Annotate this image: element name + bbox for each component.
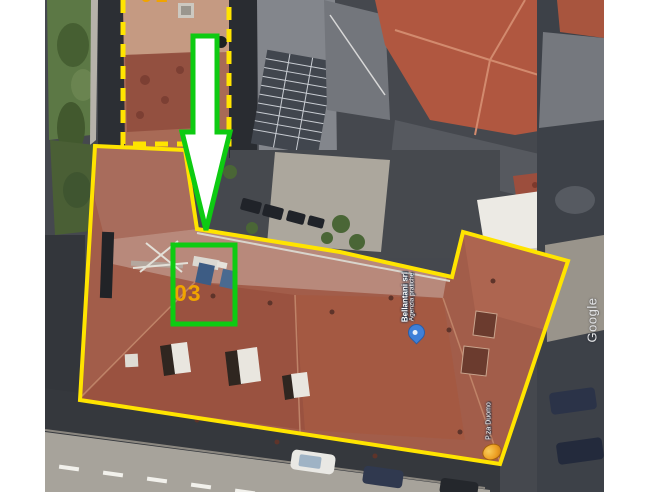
google-watermark: Google bbox=[585, 298, 600, 343]
business-map-label: Bellantani srl Agenzia pratiche bbox=[401, 272, 416, 322]
right-street bbox=[537, 0, 604, 492]
street-map-label: P.za Duomo bbox=[486, 402, 493, 440]
unit-number-label: 03 bbox=[174, 282, 202, 305]
aerial-imagery bbox=[45, 0, 604, 492]
satellite-map-image: Bellantani srl Agenzia pratiche P.za Duo… bbox=[45, 0, 604, 492]
business-label-line2: Agenzia pratiche bbox=[410, 272, 417, 322]
marker-glyph bbox=[412, 329, 419, 336]
top-partial-unit-label: 01 bbox=[140, 0, 170, 6]
dashed-building-roof bbox=[123, 0, 229, 150]
screenshot-stage: Bellantani srl Agenzia pratiche P.za Duo… bbox=[0, 0, 648, 492]
left-whitespace bbox=[0, 0, 45, 492]
right-whitespace bbox=[604, 0, 648, 492]
